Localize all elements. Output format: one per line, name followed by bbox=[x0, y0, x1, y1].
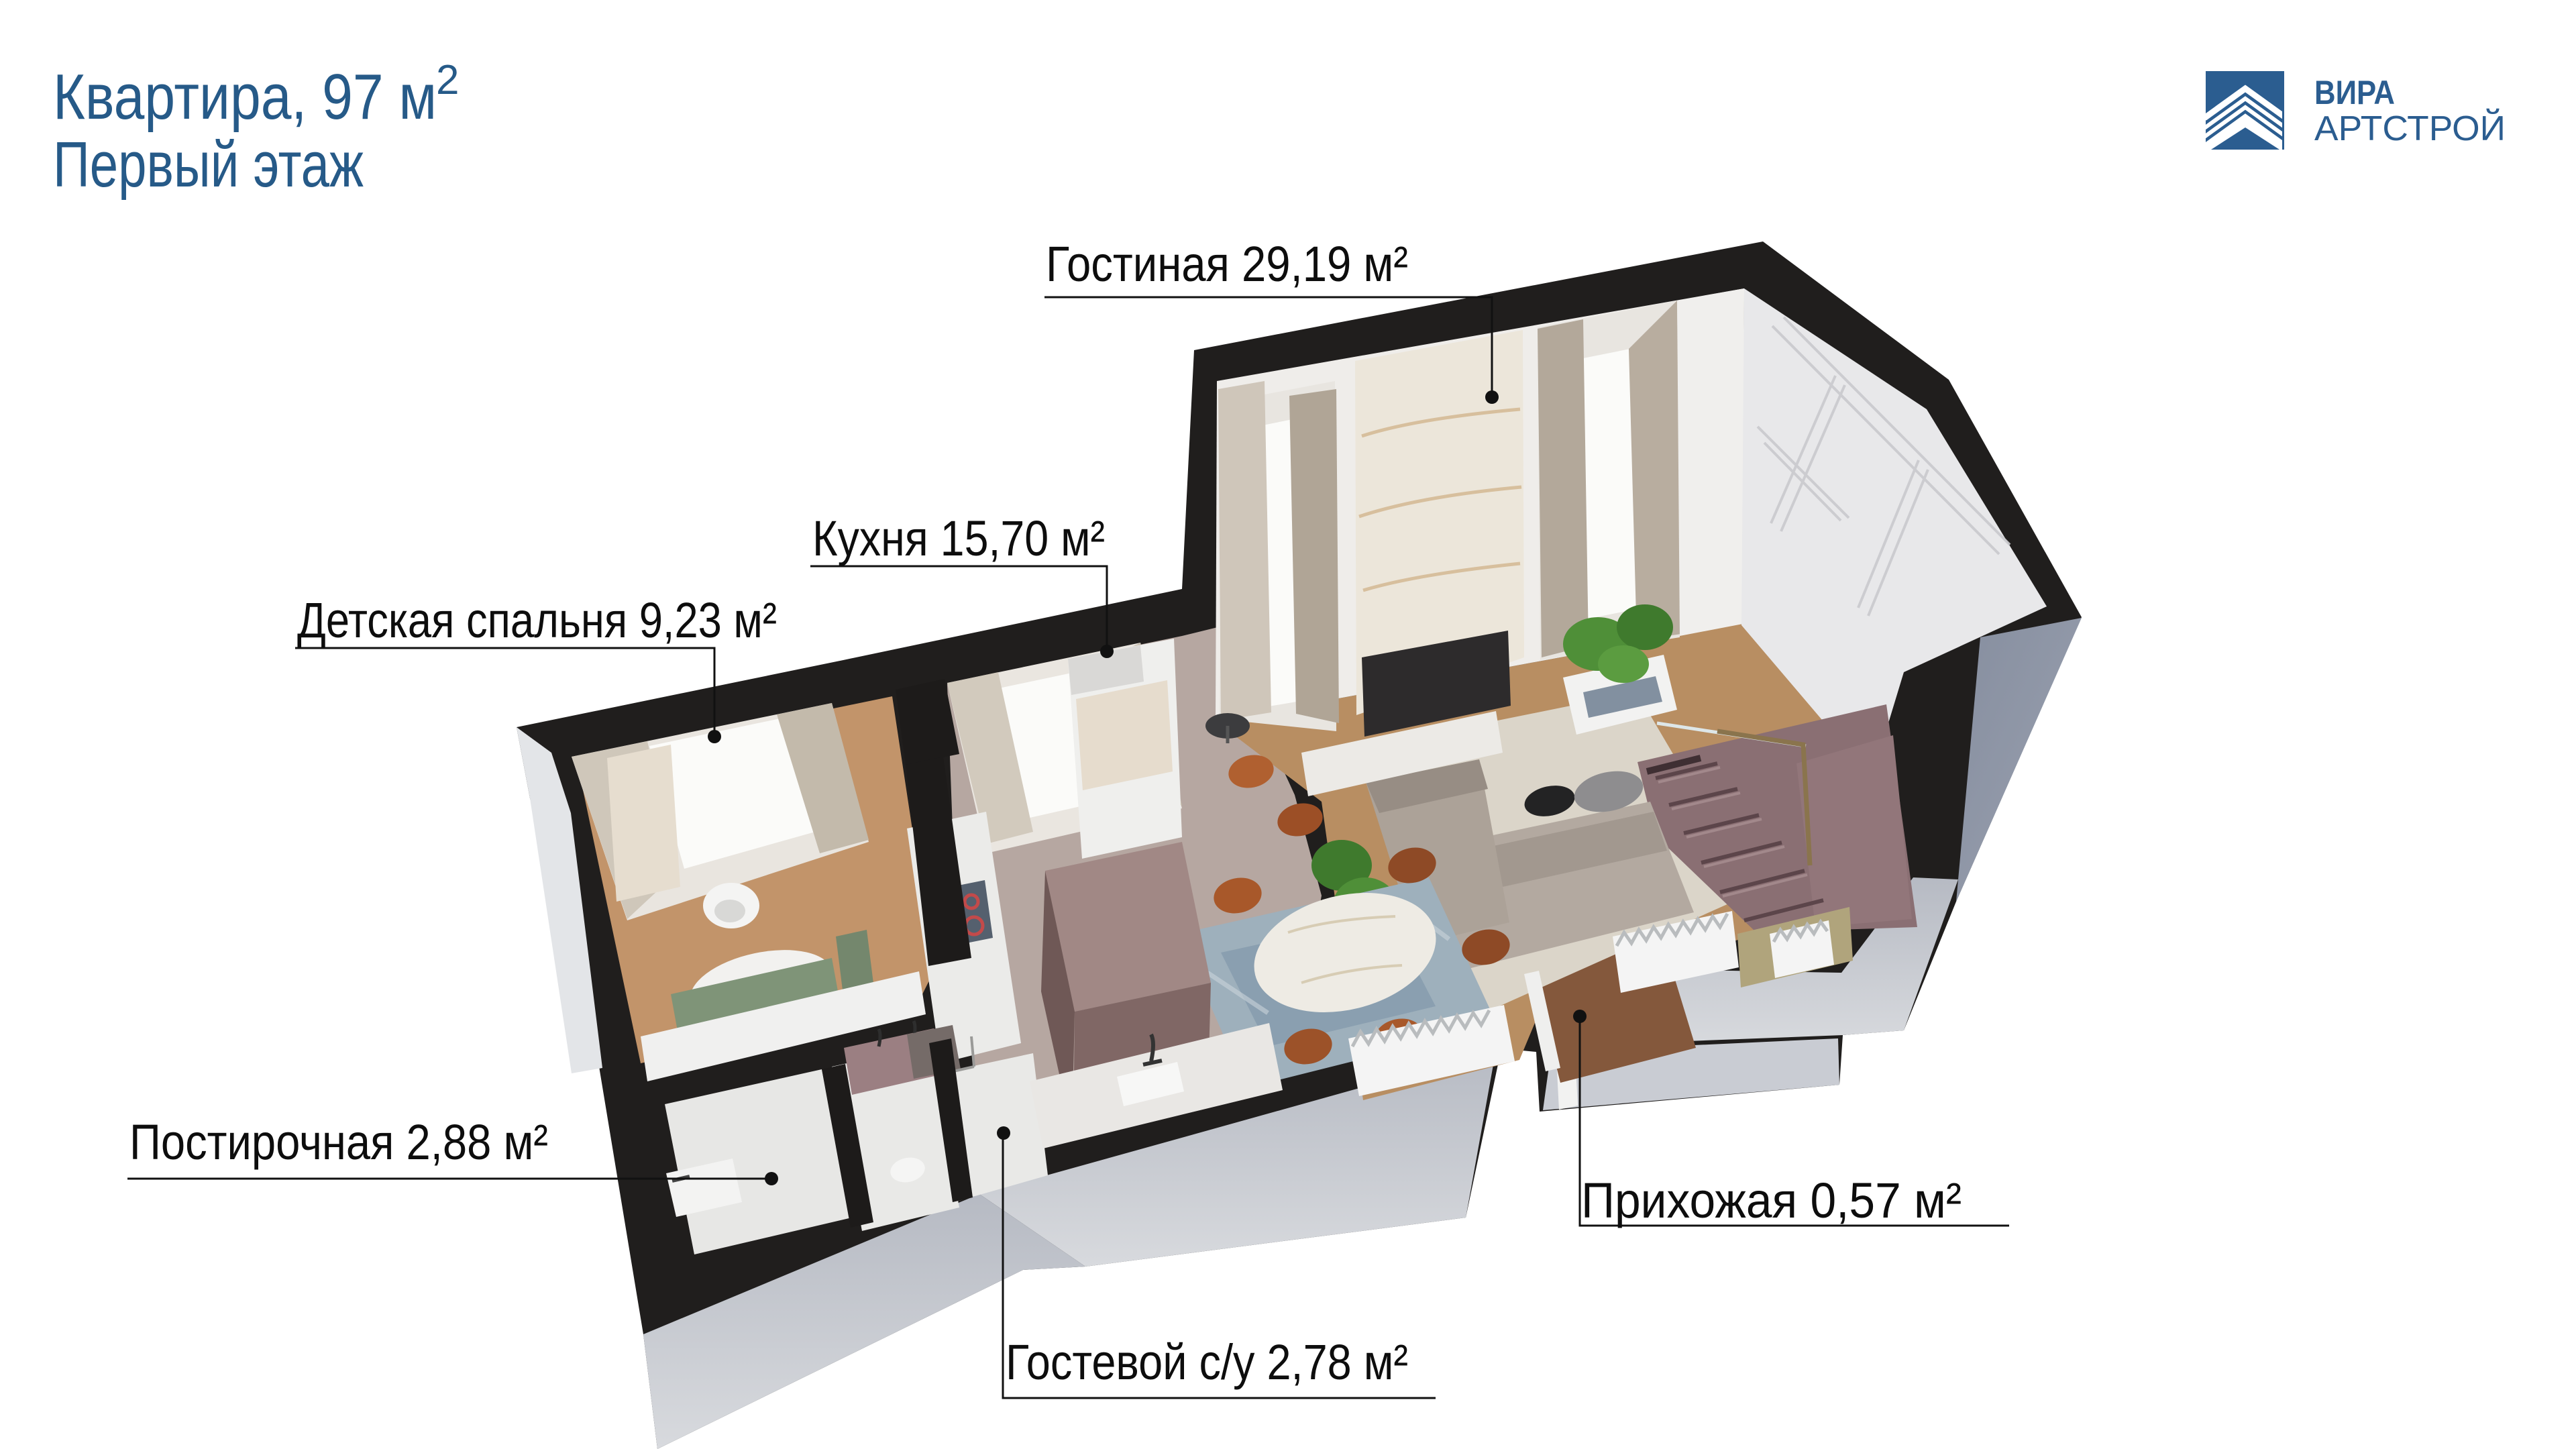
svg-text:Первый этаж: Первый этаж bbox=[53, 129, 364, 201]
svg-text:ВИРА: ВИРА bbox=[2314, 74, 2395, 111]
svg-text:Кухня 15,70 м²: Кухня 15,70 м² bbox=[812, 511, 1105, 566]
svg-text:АРТСТРОЙ: АРТСТРОЙ bbox=[2314, 109, 2506, 148]
svg-text:2: 2 bbox=[436, 57, 459, 103]
svg-text:Квартира, 97 м: Квартира, 97 м bbox=[53, 61, 437, 133]
svg-text:Детская спальня 9,23 м²: Детская спальня 9,23 м² bbox=[297, 592, 777, 648]
svg-text:Гостевой с/у 2,78 м²: Гостевой с/у 2,78 м² bbox=[1006, 1334, 1408, 1390]
svg-text:Прихожая 0,57 м²: Прихожая 0,57 м² bbox=[1581, 1173, 1962, 1228]
svg-text:Гостиная 29,19 м²: Гостиная 29,19 м² bbox=[1046, 236, 1408, 292]
svg-text:Постирочная 2,88 м²: Постирочная 2,88 м² bbox=[129, 1114, 548, 1170]
